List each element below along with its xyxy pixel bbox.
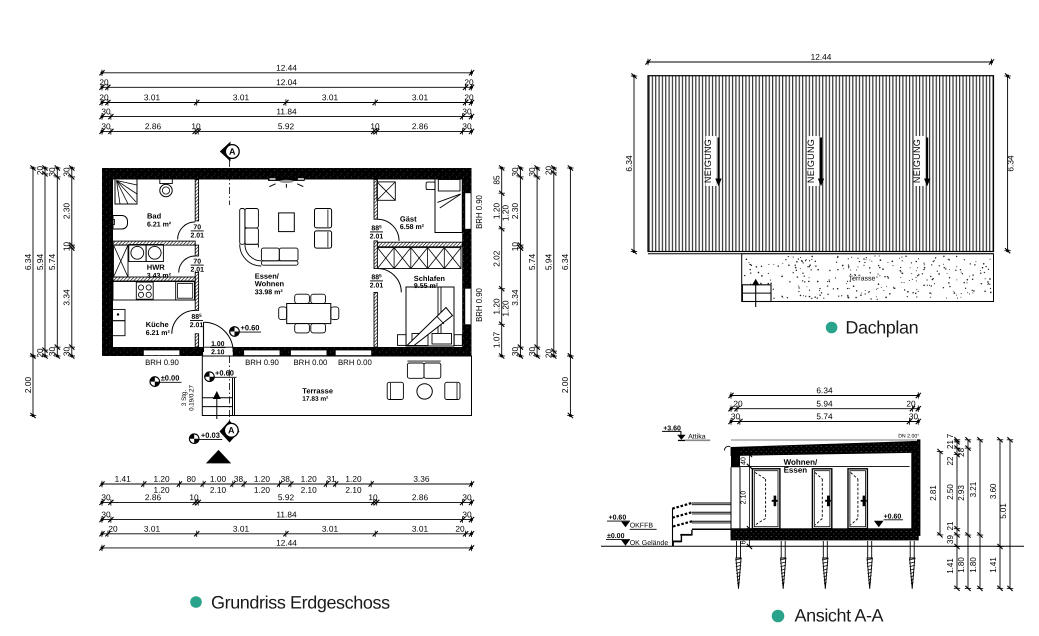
svg-text:DN 2.00°: DN 2.00° xyxy=(898,433,919,439)
svg-text:BRH 0.90: BRH 0.90 xyxy=(475,194,484,228)
svg-text:20: 20 xyxy=(455,524,465,534)
svg-text:20: 20 xyxy=(464,92,474,102)
svg-text:20: 20 xyxy=(108,524,118,534)
svg-text:20: 20 xyxy=(35,166,45,176)
svg-text:20: 20 xyxy=(35,348,45,358)
svg-text:20: 20 xyxy=(99,92,109,102)
svg-text:1.41: 1.41 xyxy=(946,558,955,574)
svg-text:BRH 0.90: BRH 0.90 xyxy=(245,358,279,367)
svg-text:Wohnen: Wohnen xyxy=(255,279,285,288)
svg-text:0.19/0.27: 0.19/0.27 xyxy=(189,385,196,411)
svg-text:Dachplan: Dachplan xyxy=(845,318,918,338)
svg-text:1.20: 1.20 xyxy=(254,485,271,495)
svg-text:10: 10 xyxy=(189,492,199,502)
svg-text:38: 38 xyxy=(281,474,291,484)
svg-text:2.10: 2.10 xyxy=(211,349,225,356)
svg-text:A: A xyxy=(229,147,236,157)
svg-text:2.00: 2.00 xyxy=(560,377,570,394)
svg-text:HWR: HWR xyxy=(147,263,165,272)
svg-text:3.21: 3.21 xyxy=(969,481,978,497)
svg-text:6.34: 6.34 xyxy=(1006,155,1016,172)
svg-text:10: 10 xyxy=(62,242,72,252)
svg-text:3.01: 3.01 xyxy=(322,524,339,534)
svg-text:2.50: 2.50 xyxy=(946,484,955,500)
svg-text:Terrasse: Terrasse xyxy=(302,386,333,395)
svg-text:20: 20 xyxy=(99,77,109,87)
svg-text:1.20: 1.20 xyxy=(501,300,511,317)
svg-text:30: 30 xyxy=(462,121,472,131)
svg-text:5.74: 5.74 xyxy=(47,254,57,271)
svg-text:38: 38 xyxy=(234,474,244,484)
svg-text:OK Gelände: OK Gelände xyxy=(630,540,669,547)
svg-text:1.20: 1.20 xyxy=(345,474,362,484)
svg-text:3.34: 3.34 xyxy=(62,289,72,306)
svg-text:NEIGUNG: NEIGUNG xyxy=(912,139,922,183)
svg-text:3.01: 3.01 xyxy=(144,92,161,102)
svg-text:5.94: 5.94 xyxy=(816,398,833,408)
svg-text:1.80: 1.80 xyxy=(969,557,978,573)
svg-text:1.00: 1.00 xyxy=(211,341,225,348)
svg-text:12.44: 12.44 xyxy=(276,538,297,548)
svg-text:1.07: 1.07 xyxy=(492,332,502,349)
svg-text:1.20: 1.20 xyxy=(301,474,318,484)
svg-text:5.74: 5.74 xyxy=(816,411,833,421)
svg-text:22: 22 xyxy=(946,456,955,465)
svg-text:30: 30 xyxy=(731,411,741,421)
svg-text:21: 21 xyxy=(946,440,955,449)
svg-text:30: 30 xyxy=(47,167,57,177)
svg-text:30: 30 xyxy=(510,167,520,177)
svg-text:2.01: 2.01 xyxy=(190,267,204,274)
svg-text:±0.00: ±0.00 xyxy=(161,374,180,383)
svg-text:2.81: 2.81 xyxy=(929,485,938,501)
svg-text:10: 10 xyxy=(370,121,380,131)
svg-text:70: 70 xyxy=(193,224,201,231)
svg-text:39: 39 xyxy=(946,535,955,544)
svg-text:6.21 m²: 6.21 m² xyxy=(146,330,171,337)
svg-text:6.21 m²: 6.21 m² xyxy=(147,222,172,229)
svg-text:7: 7 xyxy=(946,433,955,438)
svg-text:2.00: 2.00 xyxy=(23,377,33,394)
svg-text:30: 30 xyxy=(62,167,72,177)
svg-text:BRH 0.90: BRH 0.90 xyxy=(475,287,484,321)
svg-text:5.94: 5.94 xyxy=(35,254,45,271)
svg-text:2.10: 2.10 xyxy=(210,485,227,495)
svg-text:30: 30 xyxy=(62,347,72,357)
svg-text:5.92: 5.92 xyxy=(278,121,295,131)
svg-text:3.01: 3.01 xyxy=(412,92,429,102)
svg-text:31: 31 xyxy=(326,474,336,484)
svg-text:3.01: 3.01 xyxy=(144,524,161,534)
svg-text:3.36: 3.36 xyxy=(413,474,430,484)
svg-text:2.10: 2.10 xyxy=(345,485,362,495)
svg-text:10: 10 xyxy=(191,121,201,131)
svg-text:40: 40 xyxy=(741,457,748,465)
svg-text:10: 10 xyxy=(510,242,520,252)
svg-text:Ansicht A-A: Ansicht A-A xyxy=(794,606,883,626)
svg-text:30: 30 xyxy=(462,509,472,519)
svg-text:30: 30 xyxy=(101,492,111,502)
svg-text:Terrasse: Terrasse xyxy=(849,275,876,282)
svg-text:3.43 m²: 3.43 m² xyxy=(147,273,172,280)
svg-text:2.86: 2.86 xyxy=(412,121,429,131)
svg-text:1.20: 1.20 xyxy=(254,474,271,484)
svg-text:2.10: 2.10 xyxy=(301,485,318,495)
svg-text:30: 30 xyxy=(527,347,537,357)
svg-text:11.84: 11.84 xyxy=(276,106,297,116)
svg-text:85: 85 xyxy=(492,175,502,185)
svg-text:Bad: Bad xyxy=(147,212,162,221)
svg-text:3.01: 3.01 xyxy=(233,524,250,534)
svg-text:+0.60: +0.60 xyxy=(215,369,234,378)
svg-text:1.20: 1.20 xyxy=(501,205,511,222)
svg-text:NEIGUNG: NEIGUNG xyxy=(806,139,816,183)
svg-text:+0.60: +0.60 xyxy=(240,323,259,332)
svg-text:20: 20 xyxy=(544,349,554,359)
svg-text:NEIGUNG: NEIGUNG xyxy=(703,139,713,183)
svg-text:2.10: 2.10 xyxy=(741,491,748,505)
svg-text:33.98 m²: 33.98 m² xyxy=(255,289,284,296)
svg-text:6.58 m²: 6.58 m² xyxy=(400,224,425,231)
svg-text:2.30: 2.30 xyxy=(510,203,520,220)
svg-text:Gäst: Gäst xyxy=(400,215,417,224)
svg-text:Grundriss Erdgeschoss: Grundriss Erdgeschoss xyxy=(211,593,390,613)
svg-text:6.34: 6.34 xyxy=(23,254,33,271)
svg-text:2.02: 2.02 xyxy=(492,250,502,267)
svg-text:11.84: 11.84 xyxy=(276,509,297,519)
svg-text:1.41: 1.41 xyxy=(989,557,998,573)
svg-text:20: 20 xyxy=(544,166,554,176)
svg-text:20: 20 xyxy=(464,77,474,87)
svg-text:21: 21 xyxy=(946,521,955,530)
svg-text:10: 10 xyxy=(368,492,378,502)
svg-text:A: A xyxy=(228,425,235,435)
svg-text:2.01: 2.01 xyxy=(190,232,204,239)
svg-text:3 Stg.: 3 Stg. xyxy=(181,390,188,406)
svg-text:12.44: 12.44 xyxy=(276,63,297,73)
svg-text:80: 80 xyxy=(187,474,197,484)
svg-text:6.34: 6.34 xyxy=(624,155,634,172)
svg-text:2.01: 2.01 xyxy=(370,233,384,240)
svg-text:30: 30 xyxy=(462,106,472,116)
svg-text:2.01: 2.01 xyxy=(190,322,204,329)
svg-text:2.01: 2.01 xyxy=(370,282,384,289)
svg-text:1.41: 1.41 xyxy=(115,474,132,484)
svg-text:2.86: 2.86 xyxy=(145,121,162,131)
svg-text:Küche: Küche xyxy=(146,320,169,329)
svg-text:30: 30 xyxy=(510,347,520,357)
svg-text:3.34: 3.34 xyxy=(510,289,520,306)
svg-text:BRH 0.00: BRH 0.00 xyxy=(293,358,327,367)
svg-text:5.92: 5.92 xyxy=(278,492,295,502)
svg-text:1.20: 1.20 xyxy=(154,474,171,484)
svg-text:2.93: 2.93 xyxy=(957,485,966,501)
svg-text:5.74: 5.74 xyxy=(527,254,537,271)
svg-text:30: 30 xyxy=(101,121,111,131)
svg-text:1.00: 1.00 xyxy=(210,474,227,484)
svg-text:2.30: 2.30 xyxy=(62,203,72,220)
svg-text:20: 20 xyxy=(733,398,743,408)
svg-text:30: 30 xyxy=(101,509,111,519)
svg-text:OKFFB: OKFFB xyxy=(630,523,654,530)
svg-text:3.60: 3.60 xyxy=(989,483,998,499)
svg-text:3.01: 3.01 xyxy=(412,524,429,534)
svg-text:28: 28 xyxy=(957,447,966,456)
svg-text:Schlafen: Schlafen xyxy=(414,274,446,283)
svg-text:2.86: 2.86 xyxy=(412,492,429,502)
svg-text:Essen: Essen xyxy=(784,466,808,475)
svg-text:30: 30 xyxy=(101,106,111,116)
svg-text:20: 20 xyxy=(906,398,916,408)
svg-text:12.04: 12.04 xyxy=(276,77,297,87)
svg-text:12.44: 12.44 xyxy=(811,52,832,62)
svg-text:BRH 0.00: BRH 0.00 xyxy=(338,358,372,367)
svg-text:5.94: 5.94 xyxy=(544,254,554,271)
svg-text:30: 30 xyxy=(47,347,57,357)
svg-text:5.01: 5.01 xyxy=(999,503,1008,519)
svg-text:3.01: 3.01 xyxy=(233,92,250,102)
svg-text:6.34: 6.34 xyxy=(560,254,570,271)
svg-text:BRH 0.90: BRH 0.90 xyxy=(145,358,179,367)
svg-text:+0.60: +0.60 xyxy=(608,515,626,522)
svg-text:+0.03: +0.03 xyxy=(201,431,220,440)
svg-text:6.34: 6.34 xyxy=(816,385,833,395)
svg-text:17.83 m²: 17.83 m² xyxy=(302,396,329,403)
svg-text:1.80: 1.80 xyxy=(957,557,966,573)
svg-text:2.86: 2.86 xyxy=(145,492,162,502)
svg-text:70: 70 xyxy=(193,258,201,265)
svg-text:30: 30 xyxy=(909,411,919,421)
svg-text:30: 30 xyxy=(527,167,537,177)
svg-text:30: 30 xyxy=(462,492,472,502)
svg-text:3.01: 3.01 xyxy=(322,92,339,102)
